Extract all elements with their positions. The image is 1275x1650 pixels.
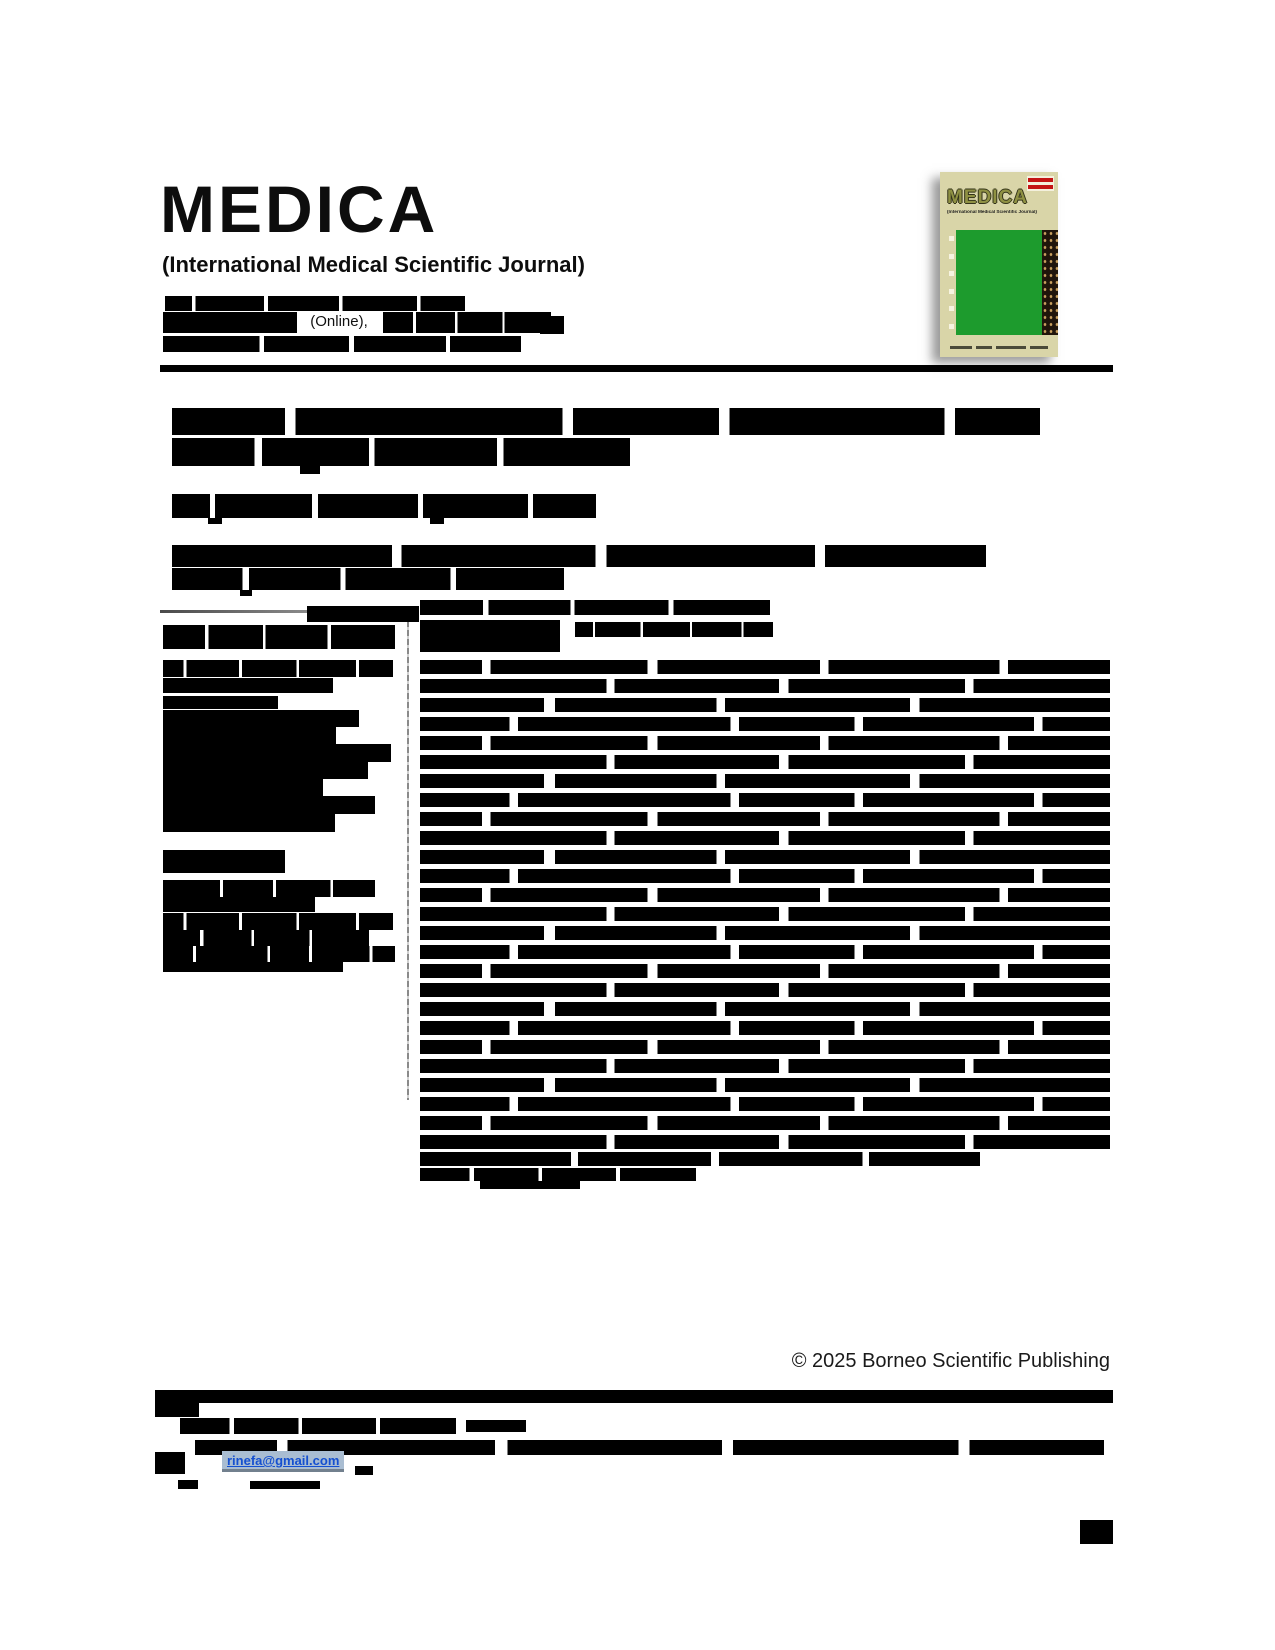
redacted-text-line: [163, 336, 521, 352]
redacted-text-line: [420, 1040, 1110, 1054]
redacted-text-line: [383, 312, 551, 333]
redacted-text-line: [163, 625, 395, 649]
cover-bullet: [949, 306, 954, 311]
redacted-text-line: [420, 793, 1110, 807]
redacted-text-line: [163, 660, 393, 677]
redacted-text-line: [240, 590, 252, 596]
journal-title: MEDICA: [160, 176, 438, 242]
redacted-text-line: [163, 850, 285, 873]
redacted-text-line: [420, 888, 1110, 902]
redacted-text-line: [163, 678, 333, 693]
redacted-text-line: [163, 897, 315, 912]
redacted-text-line: [420, 1168, 696, 1181]
redacted-text-line: [420, 983, 1110, 997]
redacted-text-line: [163, 796, 375, 814]
redacted-text-line: [163, 779, 323, 796]
redacted-text-line: [300, 466, 320, 474]
redacted-text-line: [172, 438, 630, 466]
cover-bullet: [949, 324, 954, 329]
redacted-text-line: [180, 1418, 456, 1434]
redacted-text-line: [163, 696, 278, 709]
cover-batik-strip: [1042, 230, 1058, 335]
redacted-text-line: [420, 1021, 1110, 1035]
column-divider: [407, 612, 409, 1100]
redacted-text-line: [420, 1116, 1110, 1130]
redacted-text-line: [163, 930, 369, 946]
journal-cover-thumbnail: MEDICA (International Medical Scientific…: [940, 172, 1058, 357]
redacted-text-line: [575, 622, 773, 637]
redacted-text-line: [163, 814, 335, 832]
redacted-text-line: [420, 600, 770, 615]
cover-bullet: [949, 236, 954, 241]
cover-green-panel: [956, 230, 1042, 335]
redacted-text-line: [420, 907, 1110, 921]
redacted-text-line: [155, 1452, 185, 1474]
redacted-text-line: [540, 316, 564, 334]
redacted-text-line: [430, 518, 444, 524]
redacted-text-line: [420, 831, 1110, 845]
redacted-text-line: [165, 296, 465, 311]
redacted-text-line: [307, 606, 419, 622]
redacted-text-line: [155, 1390, 1113, 1403]
redacted-text-line: [155, 1390, 199, 1417]
redacted-text-line: [420, 736, 1110, 750]
redacted-text-line: [172, 568, 564, 590]
issn-online-label: (Online),: [295, 311, 383, 333]
redacted-text-line: [420, 698, 1110, 712]
header-rule: [160, 365, 1113, 372]
redacted-text-line: [163, 744, 391, 762]
redacted-text-line: [420, 1002, 1110, 1016]
redacted-text-line: [420, 620, 560, 652]
redacted-text-line: [163, 946, 395, 962]
redacted-text-line: [466, 1420, 526, 1432]
redacted-text-line: [420, 1078, 1110, 1092]
redacted-text-line: [163, 762, 368, 779]
copyright-notice: © 2025 Borneo Scientific Publishing: [792, 1350, 1110, 1373]
redacted-text-line: [420, 926, 1110, 940]
cover-bullet: [949, 271, 954, 276]
redacted-text-line: [420, 1152, 980, 1166]
redacted-text-line: [420, 850, 1110, 864]
redacted-text-line: [420, 774, 1110, 788]
cover-subtitle: (International Medical Scientific Journa…: [947, 210, 1030, 215]
corresponding-email-link[interactable]: rinefa@gmail.com: [222, 1451, 344, 1472]
redacted-text-line: [355, 1466, 373, 1475]
journal-subtitle: (International Medical Scientific Journa…: [162, 252, 585, 278]
redacted-text-line: [208, 518, 222, 524]
redacted-text-line: [1080, 1520, 1113, 1544]
cover-artwork: [946, 230, 1058, 335]
redacted-text-line: [250, 1481, 320, 1489]
redacted-text-line: [480, 1181, 580, 1189]
redacted-text-line: [172, 408, 1040, 435]
cover-bullet: [949, 289, 954, 294]
redacted-text-line: [178, 1480, 198, 1489]
cover-issn-badge: [1027, 176, 1054, 191]
cover-bullet: [949, 254, 954, 259]
redacted-text-line: [420, 1097, 1110, 1111]
redacted-text-line: [420, 660, 1110, 674]
redacted-text-line: [420, 964, 1110, 978]
redacted-text-line: [420, 869, 1110, 883]
redacted-text-line: [163, 880, 375, 897]
redacted-text-line: [163, 312, 297, 333]
redacted-text-line: [163, 727, 336, 744]
redacted-text-line: [420, 1059, 1110, 1073]
redacted-text-line: [163, 913, 393, 930]
redacted-text-line: [172, 494, 596, 518]
redacted-text-line: [420, 945, 1110, 959]
redacted-text-line: [172, 545, 986, 567]
cover-bullet-column: [946, 230, 956, 335]
redacted-text-line: [163, 962, 343, 972]
redacted-text-line: [163, 710, 359, 727]
redacted-text-line: [420, 755, 1110, 769]
redacted-text-line: [420, 812, 1110, 826]
cover-footline: [950, 344, 1050, 350]
redacted-text-line: [420, 679, 1110, 693]
article-first-page: MEDICA (International Medical Scientific…: [0, 0, 1275, 1650]
redacted-text-line: [420, 717, 1110, 731]
redacted-text-line: [420, 1135, 1110, 1149]
